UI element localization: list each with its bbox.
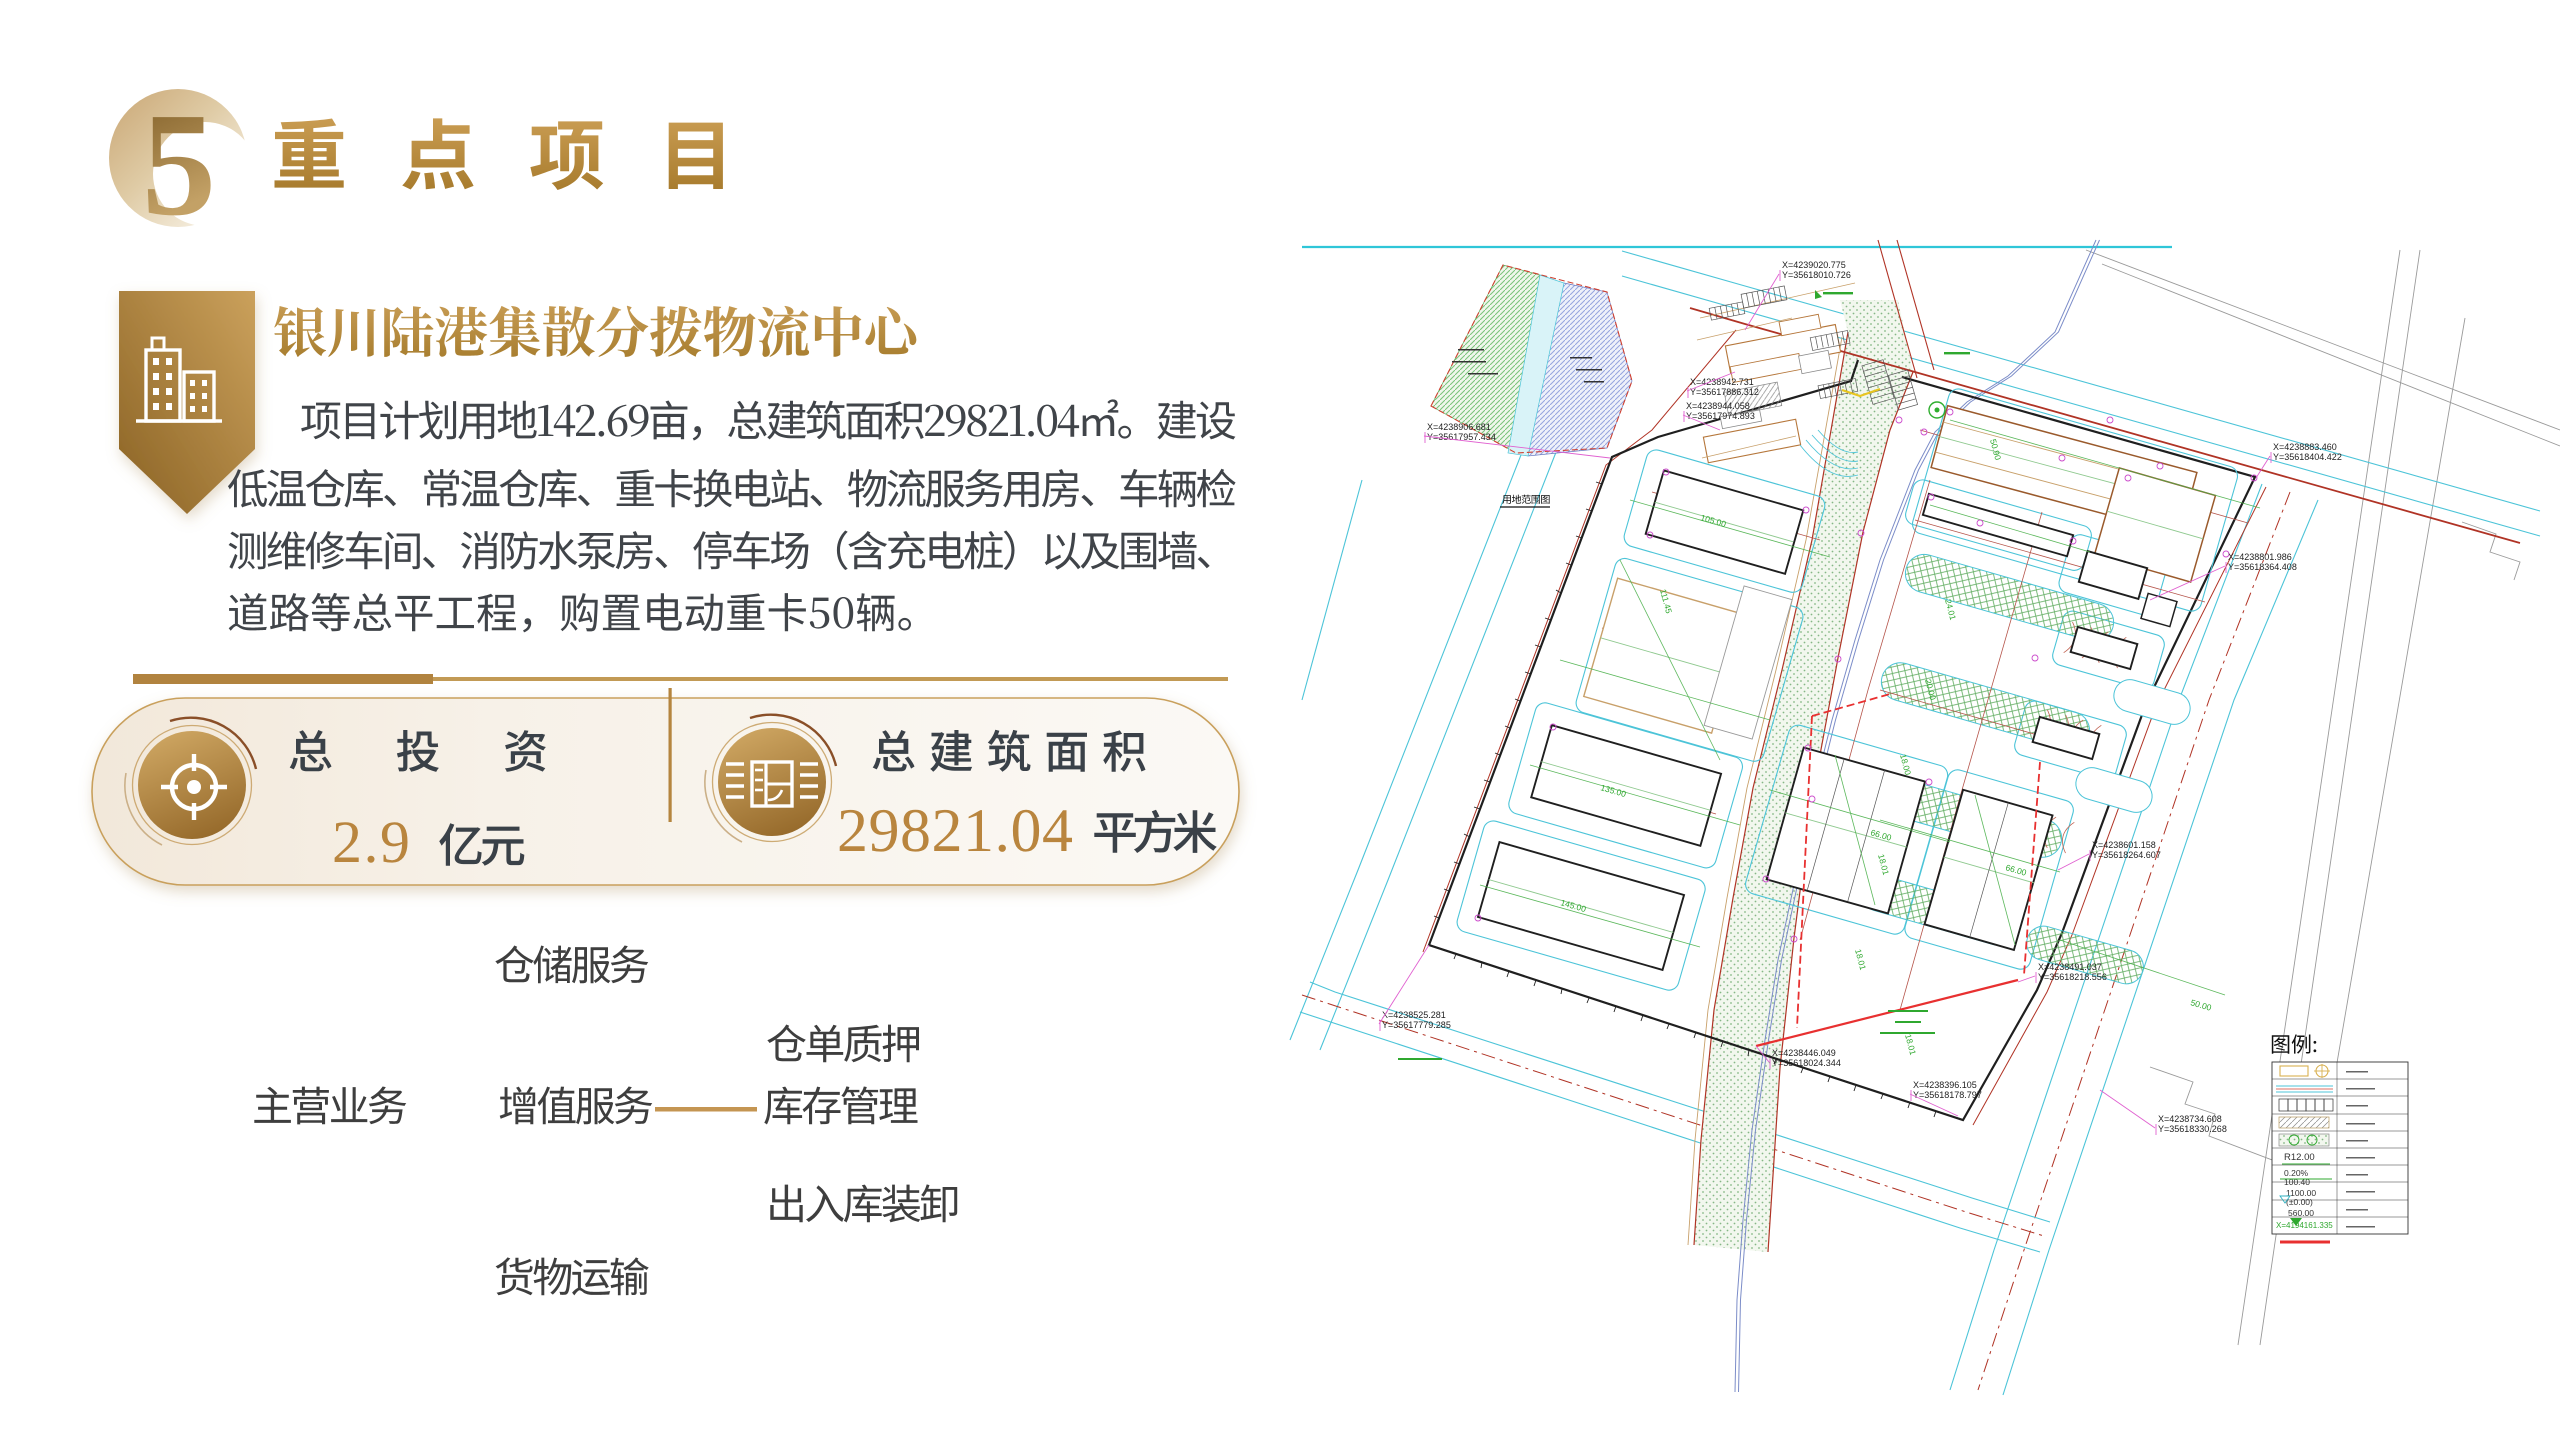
svg-text:Y=35618404.422: Y=35618404.422 [2273,452,2342,462]
svg-text:X=4238883.460: X=4238883.460 [2273,442,2337,452]
svg-text:100.40: 100.40 [2284,1177,2310,1187]
svg-text:X=4194161.335: X=4194161.335 [2276,1221,2333,1230]
svg-text:18.00: 18.00 [1898,753,1913,776]
svg-text:Y=35617886.312: Y=35617886.312 [1690,387,1759,397]
svg-text:Y=35618218.556: Y=35618218.556 [2038,972,2107,982]
svg-text:Y=35617974.893: Y=35617974.893 [1686,411,1755,421]
svg-text:X=4238446.049: X=4238446.049 [1772,1048,1836,1058]
svg-text:Y=35617779.285: Y=35617779.285 [1382,1020,1451,1030]
svg-text:X=4238942.731: X=4238942.731 [1690,377,1754,387]
svg-text:X=4239020.775: X=4239020.775 [1782,260,1846,270]
svg-text:Y=35618364.408: Y=35618364.408 [2228,562,2297,572]
svg-text:X=4238396.105: X=4238396.105 [1913,1080,1977,1090]
svg-text:18.01: 18.01 [1853,948,1868,971]
svg-text:X=4238906.681: X=4238906.681 [1427,422,1491,432]
svg-text:(±0.00): (±0.00) [2286,1197,2313,1207]
svg-text:Y=35618264.607: Y=35618264.607 [2092,850,2161,860]
svg-text:560.00: 560.00 [2288,1208,2314,1218]
svg-text:Y=35618010.726: Y=35618010.726 [1782,270,1851,280]
svg-text:50.00: 50.00 [2189,997,2212,1013]
svg-text:Y=35618330.268: Y=35618330.268 [2158,1124,2227,1134]
svg-text:X=4238525.281: X=4238525.281 [1382,1010,1446,1020]
svg-text:X=4238734.608: X=4238734.608 [2158,1114,2222,1124]
svg-text:R12.00: R12.00 [2284,1152,2315,1163]
svg-text:X=4238601.158: X=4238601.158 [2092,840,2156,850]
svg-text:18.01: 18.01 [1903,1033,1918,1056]
svg-text:X=4238944.058: X=4238944.058 [1686,401,1750,411]
svg-text:Y=35618024.344: Y=35618024.344 [1772,1058,1841,1068]
svg-text:X=4238491.037: X=4238491.037 [2038,962,2102,972]
svg-text:Y=35618178.797: Y=35618178.797 [1913,1090,1982,1100]
svg-text:X=4238801.986: X=4238801.986 [2228,552,2292,562]
